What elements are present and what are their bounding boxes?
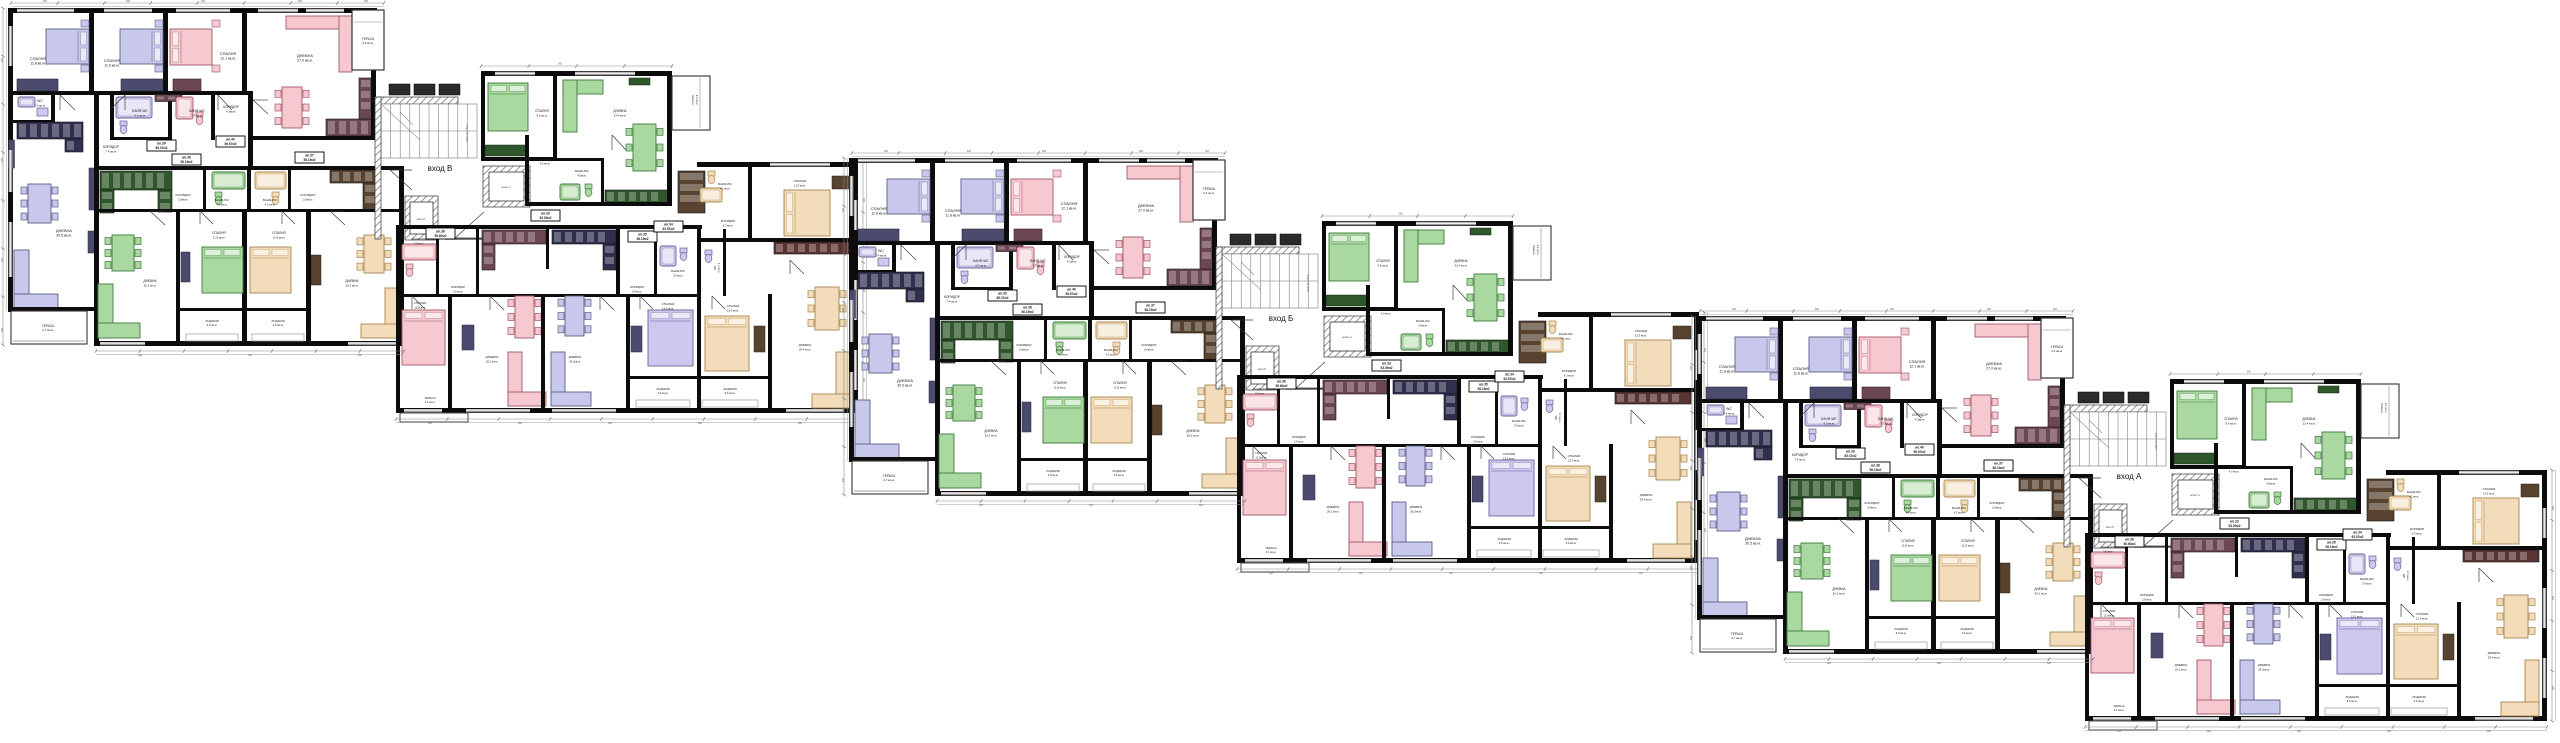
- svg-text:вход А: вход А: [2117, 472, 2142, 481]
- svg-text:вход Б: вход Б: [1269, 314, 1294, 323]
- svg-text:вход В: вход В: [428, 164, 453, 173]
